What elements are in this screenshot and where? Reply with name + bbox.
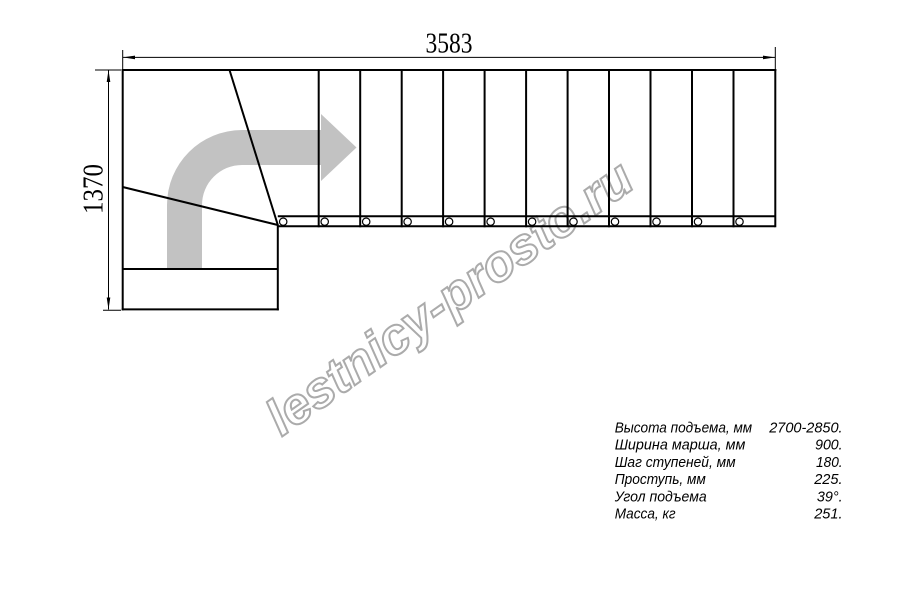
- svg-text:Шаг ступеней, мм: Шаг ступеней, мм: [615, 454, 736, 471]
- svg-text:3583: 3583: [426, 28, 473, 59]
- svg-text:900.: 900.: [815, 437, 843, 454]
- svg-text:2700-2850.: 2700-2850.: [768, 419, 842, 436]
- svg-text:Ширина марша, мм: Ширина марша, мм: [615, 437, 746, 454]
- svg-text:Масса, кг: Масса, кг: [615, 506, 676, 523]
- svg-text:Угол подъема: Угол подъема: [614, 488, 707, 505]
- svg-text:39°.: 39°.: [817, 488, 843, 505]
- svg-text:1370: 1370: [79, 164, 110, 214]
- svg-text:180.: 180.: [816, 454, 843, 471]
- svg-text:Проступь, мм: Проступь, мм: [615, 471, 706, 488]
- svg-text:Высота подъема, мм: Высота подъема, мм: [615, 419, 752, 436]
- svg-text:251.: 251.: [813, 506, 842, 523]
- svg-text:225.: 225.: [813, 471, 842, 488]
